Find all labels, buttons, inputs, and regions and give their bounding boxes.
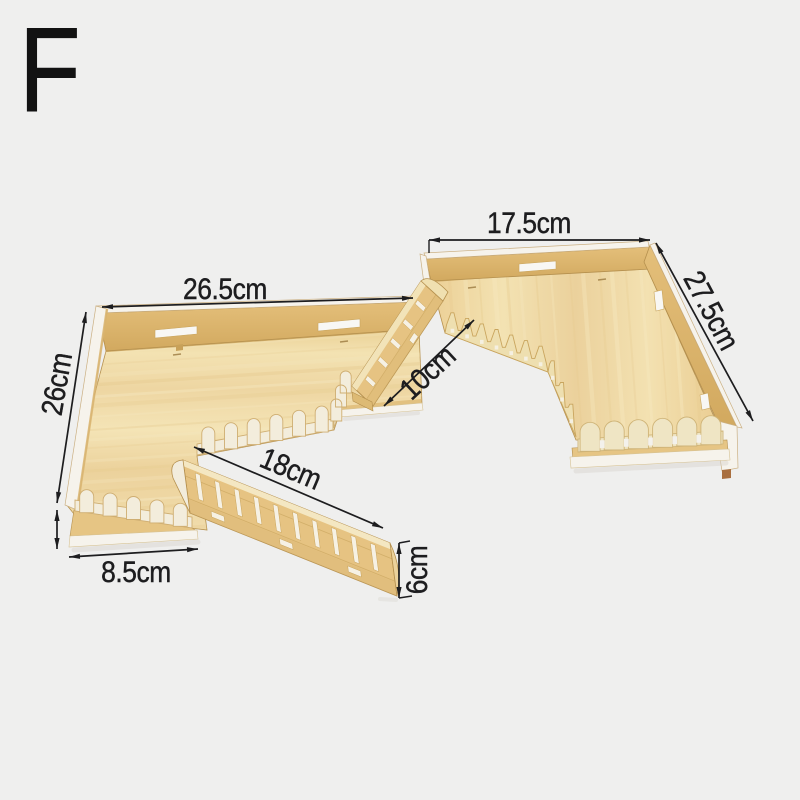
svg-text:8.5cm: 8.5cm [101, 554, 171, 588]
svg-text:F: F [19, 4, 81, 137]
svg-text:6cm: 6cm [399, 546, 433, 595]
svg-text:17.5cm: 17.5cm [487, 205, 571, 239]
svg-text:26.5cm: 26.5cm [183, 271, 267, 305]
